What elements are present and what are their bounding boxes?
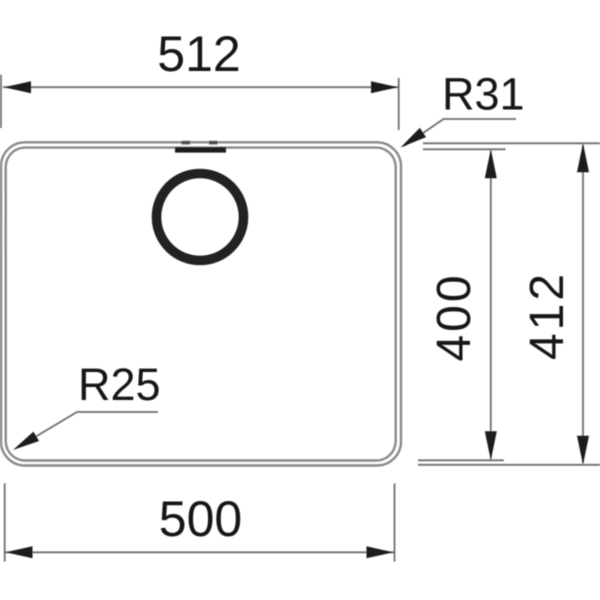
svg-text:400: 400 xyxy=(428,272,481,361)
svg-text:512: 512 xyxy=(157,26,240,82)
svg-text:R31: R31 xyxy=(442,69,525,120)
svg-text:500: 500 xyxy=(159,491,242,547)
svg-text:R25: R25 xyxy=(78,359,161,410)
svg-text:412: 412 xyxy=(521,271,574,360)
